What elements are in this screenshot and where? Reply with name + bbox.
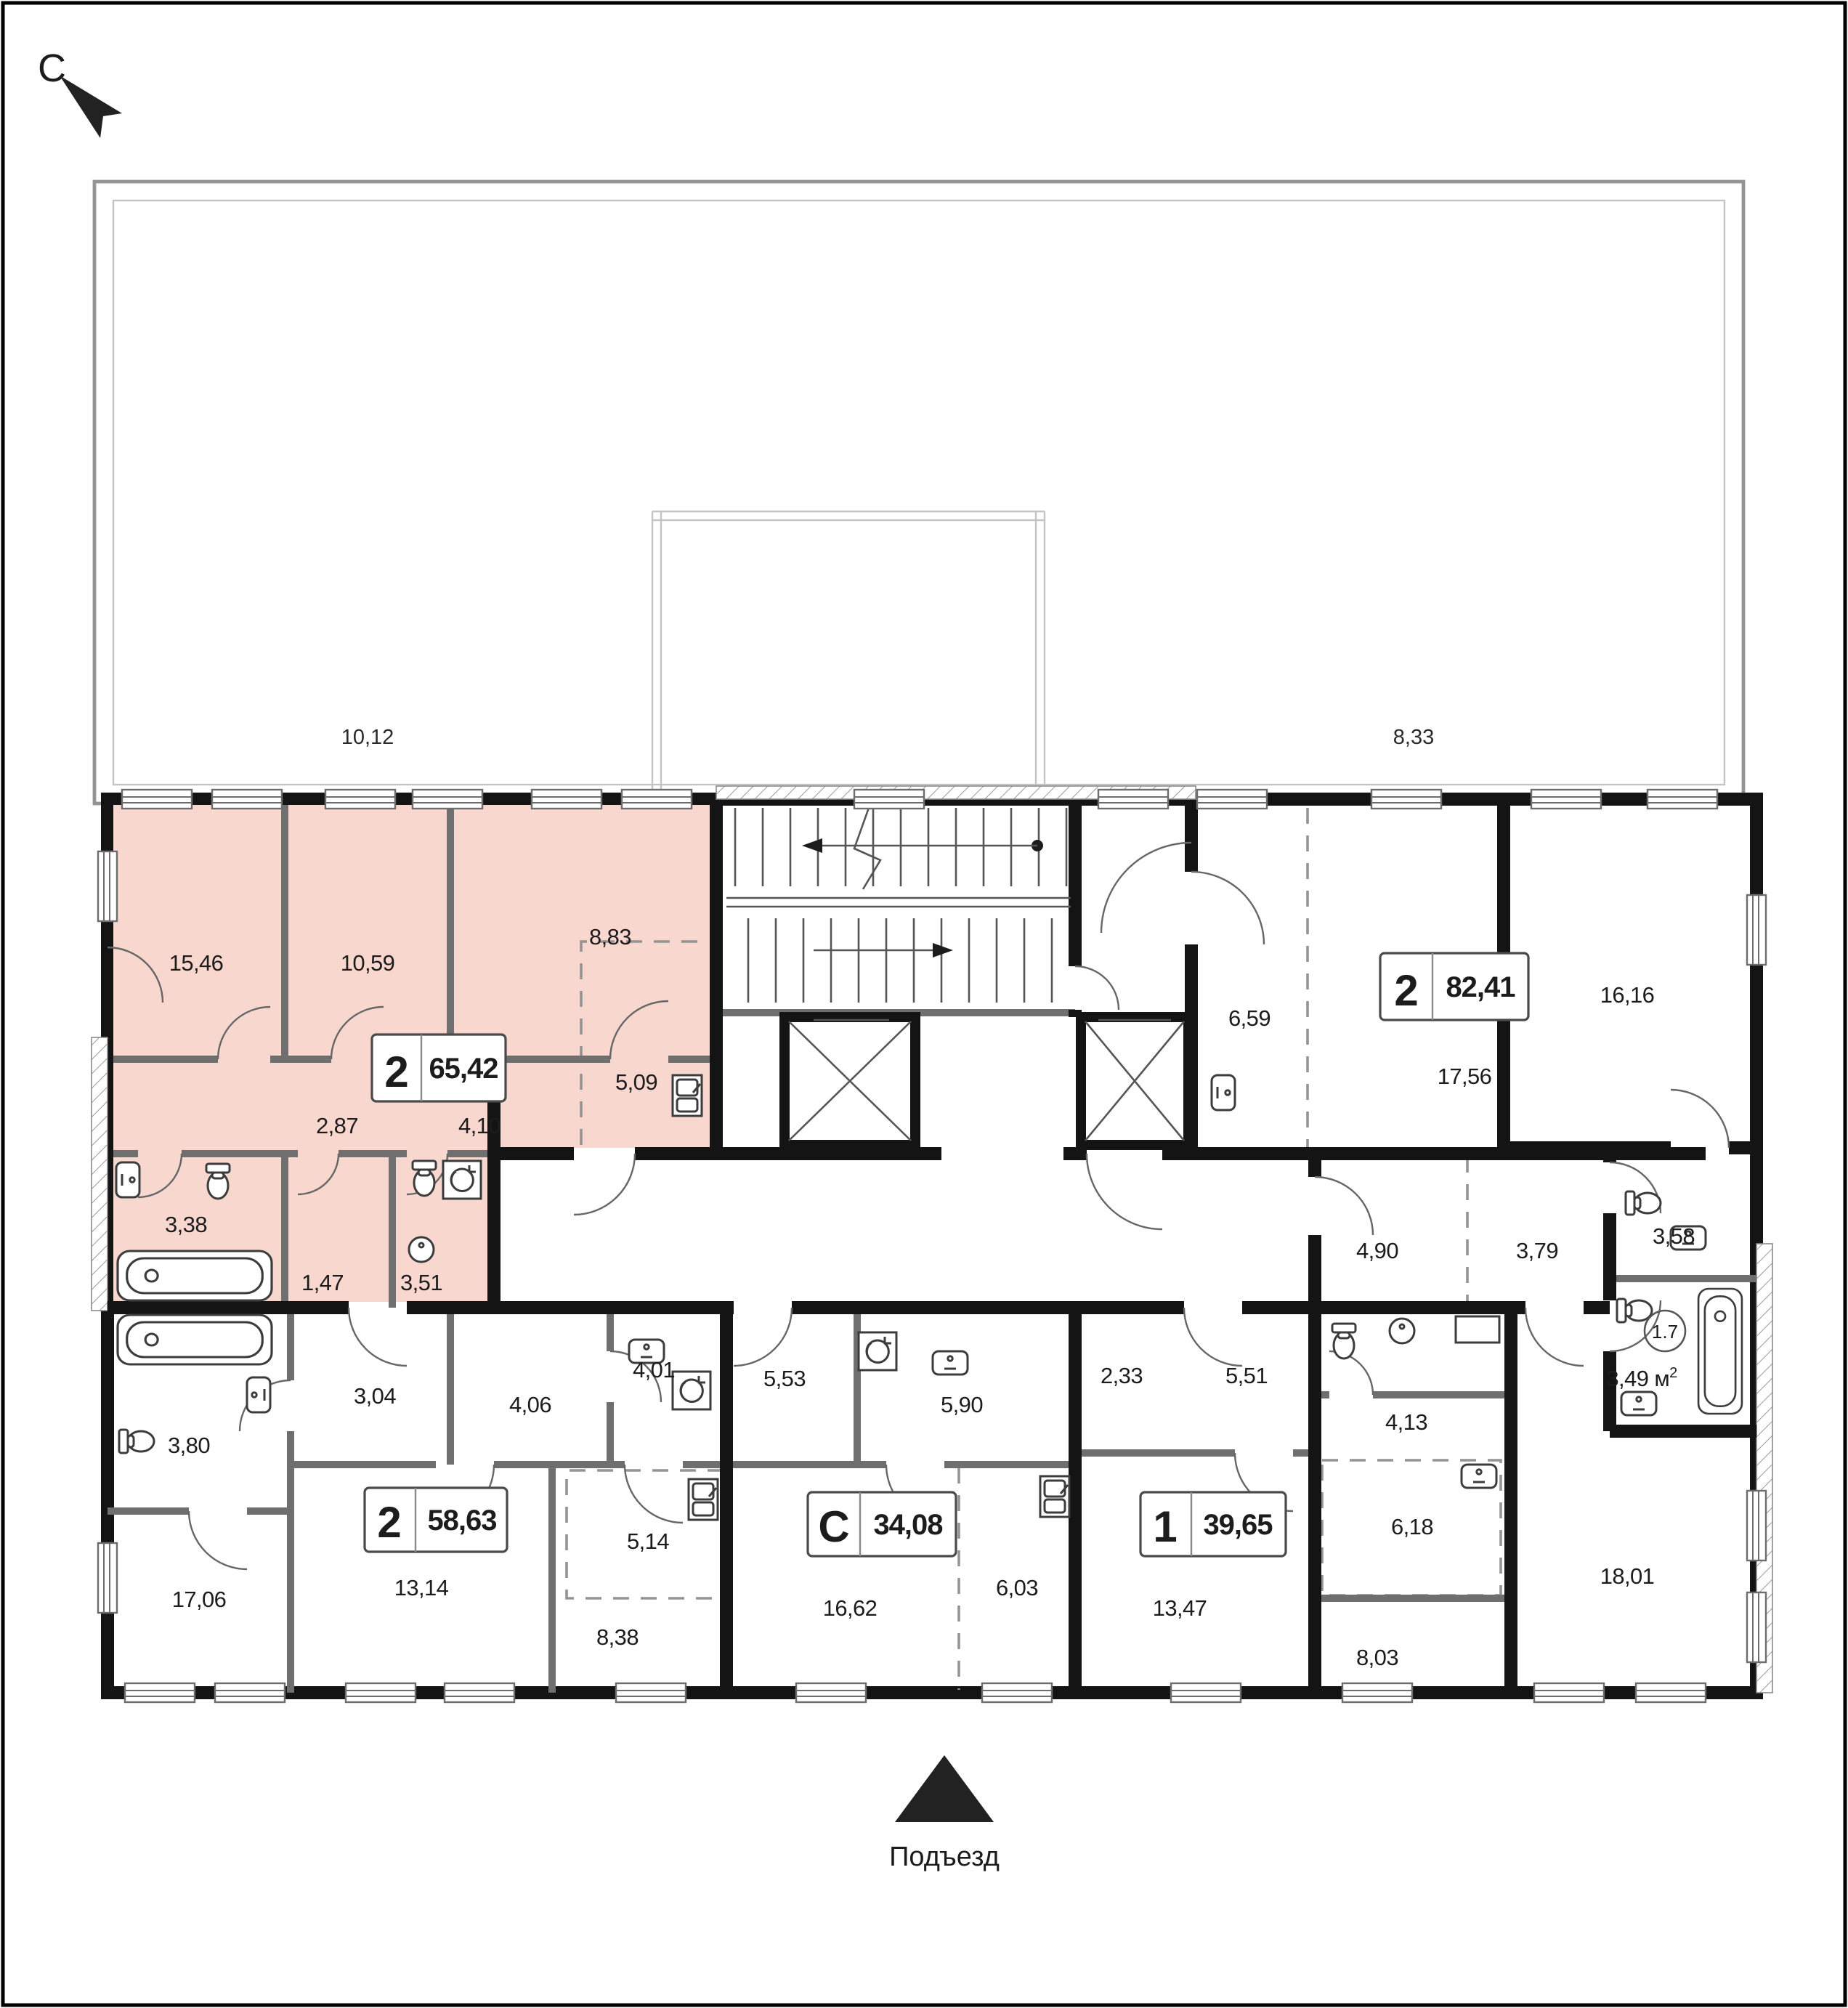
- toilet-icon: [1626, 1191, 1661, 1215]
- apartment-badge-82-41[interactable]: 2 82,41: [1380, 953, 1528, 1020]
- room-area-label: 2,87: [316, 1113, 358, 1138]
- room-area-label: 4,13: [1385, 1409, 1427, 1435]
- badge-rooms-count: С: [818, 1502, 849, 1551]
- room-area-label: 4,90: [1356, 1238, 1398, 1263]
- room-area-label: 5,51: [1225, 1363, 1268, 1388]
- room-area-label: 6,18: [1391, 1514, 1433, 1539]
- badge-total-area: 58,63: [427, 1505, 496, 1537]
- room-area-label: 16,62: [823, 1595, 878, 1621]
- shower-tray-icon: [1456, 1316, 1499, 1343]
- room-area-label: 3,38: [165, 1212, 207, 1237]
- apartment-badge-65-42[interactable]: 2 65,42: [372, 1035, 506, 1101]
- sink-icon: [1462, 1465, 1496, 1488]
- badge-rooms-count: 2: [1394, 966, 1418, 1015]
- kitchen-sink-icon: [673, 1075, 702, 1116]
- badge-total-area: 82,41: [1446, 971, 1515, 1003]
- terrace-outline: [94, 182, 1743, 803]
- room-area-label: 1,47: [301, 1270, 344, 1295]
- room-area-label: 13,14: [394, 1575, 449, 1600]
- floor-plan-page: С 10,12 8,33: [0, 0, 1848, 2008]
- toilet-icon: [413, 1161, 436, 1196]
- badge-rooms-count: 2: [377, 1498, 401, 1547]
- room-area-label: 4,10: [458, 1113, 500, 1138]
- badge-total-area: 34,08: [873, 1509, 943, 1541]
- apartment-badge-34-08[interactable]: С 34,08: [808, 1492, 956, 1556]
- room-area-label: 3,58: [1653, 1223, 1695, 1249]
- compass-label: С: [38, 46, 66, 90]
- room-area-label: 5,53: [763, 1366, 806, 1391]
- room-area-label: 5,09: [615, 1069, 657, 1095]
- round-sink-icon: [1390, 1319, 1414, 1343]
- room-area-label: 6,03: [996, 1575, 1038, 1600]
- room-area-label: 8,83: [589, 924, 631, 950]
- badge-rooms-count: 1: [1153, 1502, 1177, 1551]
- round-sink-icon: [409, 1237, 434, 1262]
- room-area-label: 8,03: [1356, 1645, 1398, 1670]
- room-area-label: 17,56: [1438, 1064, 1492, 1089]
- sink-icon: [247, 1377, 270, 1412]
- terrace-area-label-left: 10,12: [341, 726, 394, 749]
- room-area-label: 3,80: [168, 1433, 210, 1458]
- room-area-label: 5,14: [627, 1529, 669, 1554]
- room-area-label: 2,33: [1101, 1363, 1143, 1388]
- room-area-label: 3,79: [1516, 1238, 1558, 1263]
- sink-icon: [1621, 1392, 1656, 1415]
- toilet-icon: [1332, 1324, 1355, 1359]
- badge-total-area: 39,65: [1203, 1509, 1273, 1541]
- entrance-label: Подъезд: [889, 1842, 1000, 1872]
- bathtub-icon: [1698, 1289, 1742, 1414]
- badge-rooms-count: 2: [384, 1048, 408, 1096]
- room-area-label: 4,01: [633, 1357, 675, 1382]
- room-area-label-with-unit: 3,49м2: [1606, 1365, 1677, 1391]
- room-area-label: 3,51: [400, 1270, 442, 1295]
- room-area-label: 8,38: [596, 1624, 639, 1650]
- room-area-label: 6,59: [1228, 1005, 1270, 1031]
- toilet-icon: [206, 1164, 230, 1199]
- room-area-label: 3,04: [354, 1383, 396, 1409]
- apartment-badge-58-63[interactable]: 2 58,63: [365, 1488, 507, 1552]
- toilet-icon: [119, 1430, 154, 1453]
- terrace-area-label-right: 8,33: [1393, 726, 1434, 749]
- toilet-icon: [1617, 1299, 1652, 1322]
- room-area-label: 16,16: [1600, 982, 1655, 1008]
- room-area-label: 10,59: [341, 950, 395, 976]
- bathtub-icon: [118, 1251, 272, 1300]
- room-area-label: 5,90: [941, 1392, 983, 1417]
- washing-machine-icon: [859, 1332, 896, 1370]
- shaft-marker-label: 1.7: [1652, 1321, 1678, 1343]
- floor-plan-drawing: С 10,12 8,33: [0, 0, 1848, 2008]
- badge-total-area: 65,42: [429, 1053, 498, 1085]
- washing-machine-icon: [673, 1372, 710, 1409]
- room-area-label: 4,06: [509, 1392, 551, 1417]
- kitchen-sink-icon: [689, 1479, 718, 1520]
- room-area-label: 18,01: [1600, 1563, 1655, 1589]
- bathtub-icon: [118, 1315, 272, 1364]
- kitchen-sink-icon: [1040, 1476, 1069, 1517]
- room-area-label: 17,06: [172, 1587, 227, 1612]
- sink-icon: [116, 1162, 139, 1197]
- room-area-label: 15,46: [169, 950, 224, 976]
- washing-machine-icon: [443, 1161, 481, 1199]
- sink-icon: [1212, 1075, 1235, 1110]
- apartment-badge-39-65[interactable]: 1 39,65: [1140, 1492, 1286, 1556]
- room-area-label: 13,47: [1153, 1595, 1207, 1621]
- sink-icon: [933, 1351, 968, 1375]
